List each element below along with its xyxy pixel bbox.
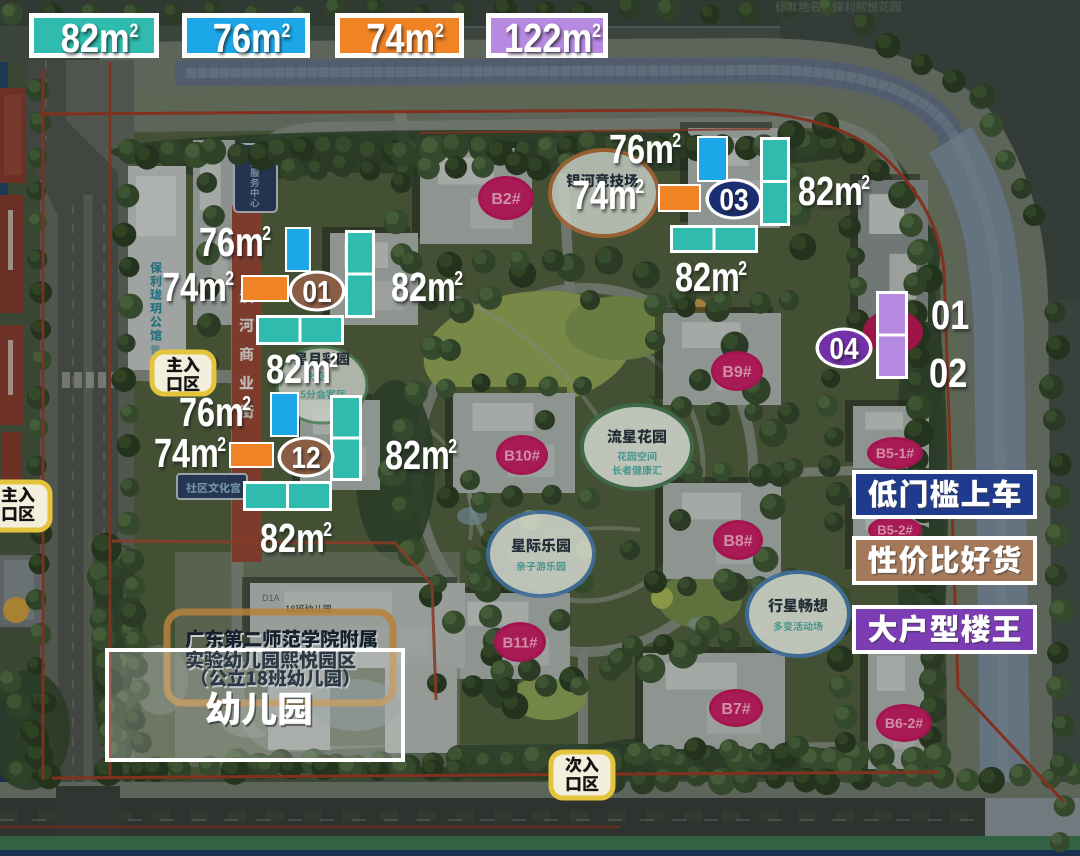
svg-text:74m: 74m — [154, 430, 219, 475]
svg-text:B6-2#: B6-2# — [885, 715, 923, 731]
svg-text:B2#: B2# — [491, 191, 520, 208]
svg-text:B5-2#: B5-2# — [877, 523, 913, 538]
svg-text:74m: 74m — [572, 172, 637, 217]
svg-text:B7#: B7# — [721, 701, 750, 718]
svg-text:76m: 76m — [179, 389, 244, 434]
svg-text:03: 03 — [719, 183, 748, 217]
svg-text:74m: 74m — [162, 264, 227, 309]
svg-text:122m: 122m — [504, 16, 592, 61]
svg-text:12: 12 — [291, 441, 320, 475]
svg-text:2: 2 — [635, 175, 644, 197]
svg-text:B10#: B10# — [504, 447, 541, 464]
svg-text:2: 2 — [130, 20, 139, 42]
svg-text:82m: 82m — [798, 168, 863, 213]
svg-text:2: 2 — [217, 433, 226, 455]
svg-text:2: 2 — [672, 129, 681, 151]
svg-text:82m: 82m — [675, 254, 740, 299]
svg-text:2: 2 — [435, 20, 444, 42]
svg-text:B8#: B8# — [723, 533, 752, 550]
svg-text:82m: 82m — [260, 515, 325, 560]
svg-text:2: 2 — [323, 518, 332, 540]
svg-text:76m: 76m — [213, 16, 282, 61]
svg-text:01: 01 — [931, 293, 969, 338]
svg-text:2: 2 — [242, 392, 251, 414]
svg-text:2: 2 — [282, 20, 291, 42]
svg-text:2: 2 — [454, 267, 463, 289]
svg-text:2: 2 — [225, 267, 234, 289]
svg-text:2: 2 — [861, 171, 870, 193]
svg-text:76m: 76m — [609, 126, 674, 171]
svg-text:82m: 82m — [385, 432, 450, 477]
svg-text:B9#: B9# — [722, 364, 751, 381]
svg-text:B5-1#: B5-1# — [876, 445, 914, 461]
svg-text:82m: 82m — [61, 16, 130, 61]
svg-text:B11#: B11# — [502, 634, 538, 651]
svg-text:74m: 74m — [366, 16, 435, 61]
svg-text:2: 2 — [592, 20, 601, 42]
svg-text:01: 01 — [302, 275, 331, 309]
svg-text:04: 04 — [829, 332, 858, 366]
svg-text:2: 2 — [329, 349, 338, 371]
svg-text:2: 2 — [448, 435, 457, 457]
svg-text:02: 02 — [929, 351, 967, 396]
svg-text:82m: 82m — [391, 264, 456, 309]
svg-text:76m: 76m — [199, 219, 264, 264]
svg-text:2: 2 — [262, 222, 271, 244]
svg-text:82m: 82m — [266, 346, 331, 391]
svg-text:2: 2 — [738, 257, 747, 279]
